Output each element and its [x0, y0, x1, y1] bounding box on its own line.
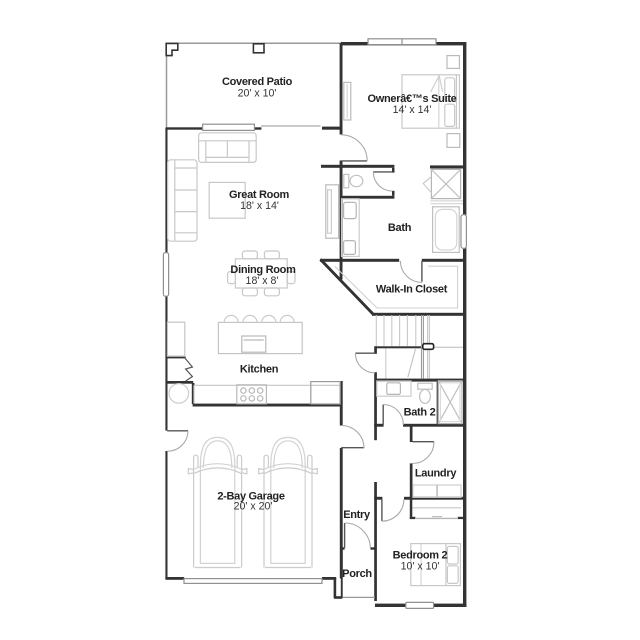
svg-text:Covered Patio: Covered Patio	[222, 76, 293, 88]
svg-text:Porch: Porch	[342, 568, 372, 580]
svg-text:Laundry: Laundry	[415, 468, 457, 480]
svg-text:Bath: Bath	[388, 222, 412, 234]
svg-text:20' x 20': 20' x 20'	[234, 501, 273, 513]
svg-text:20' x 10': 20' x 10'	[238, 88, 277, 100]
svg-text:Bath 2: Bath 2	[404, 407, 436, 419]
svg-text:14' x 14': 14' x 14'	[393, 104, 432, 116]
svg-text:Kitchen: Kitchen	[240, 364, 279, 376]
svg-text:18' x 14': 18' x 14'	[240, 200, 279, 212]
svg-text:10' x 10': 10' x 10'	[401, 561, 440, 573]
svg-text:18' x 8': 18' x 8'	[246, 275, 279, 287]
svg-text:Walk-In Closet: Walk-In Closet	[376, 284, 448, 296]
svg-text:Entry: Entry	[343, 509, 371, 521]
